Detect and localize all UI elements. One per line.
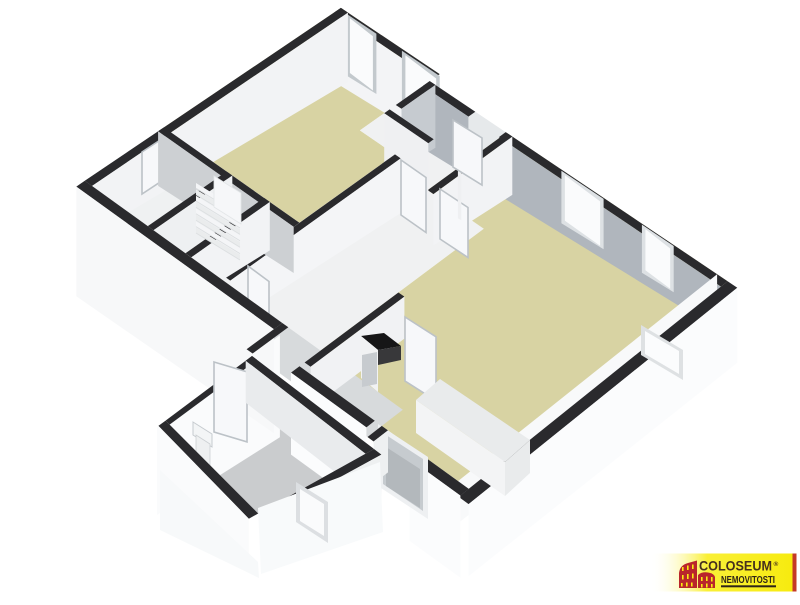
svg-text:NEMOVITOSTI: NEMOVITOSTI <box>721 575 775 586</box>
svg-text:COLOSEUM: COLOSEUM <box>699 558 772 574</box>
svg-text:®: ® <box>774 560 779 568</box>
